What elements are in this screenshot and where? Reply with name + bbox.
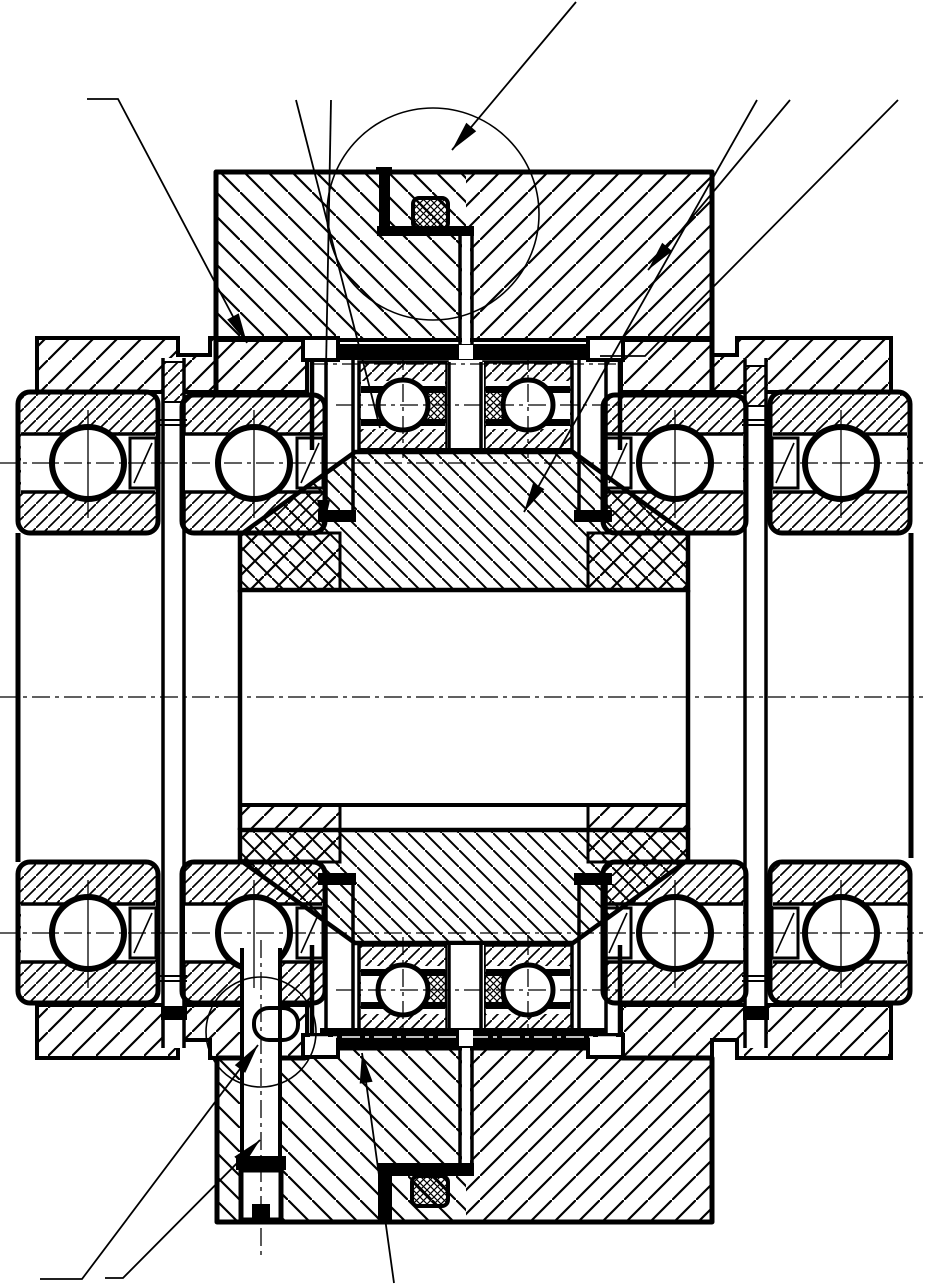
oring-seal-bottom [412, 1176, 448, 1206]
section-drawing-canvas [0, 0, 928, 1287]
drawing-page [0, 0, 928, 1287]
oring-seal-top [413, 198, 448, 229]
